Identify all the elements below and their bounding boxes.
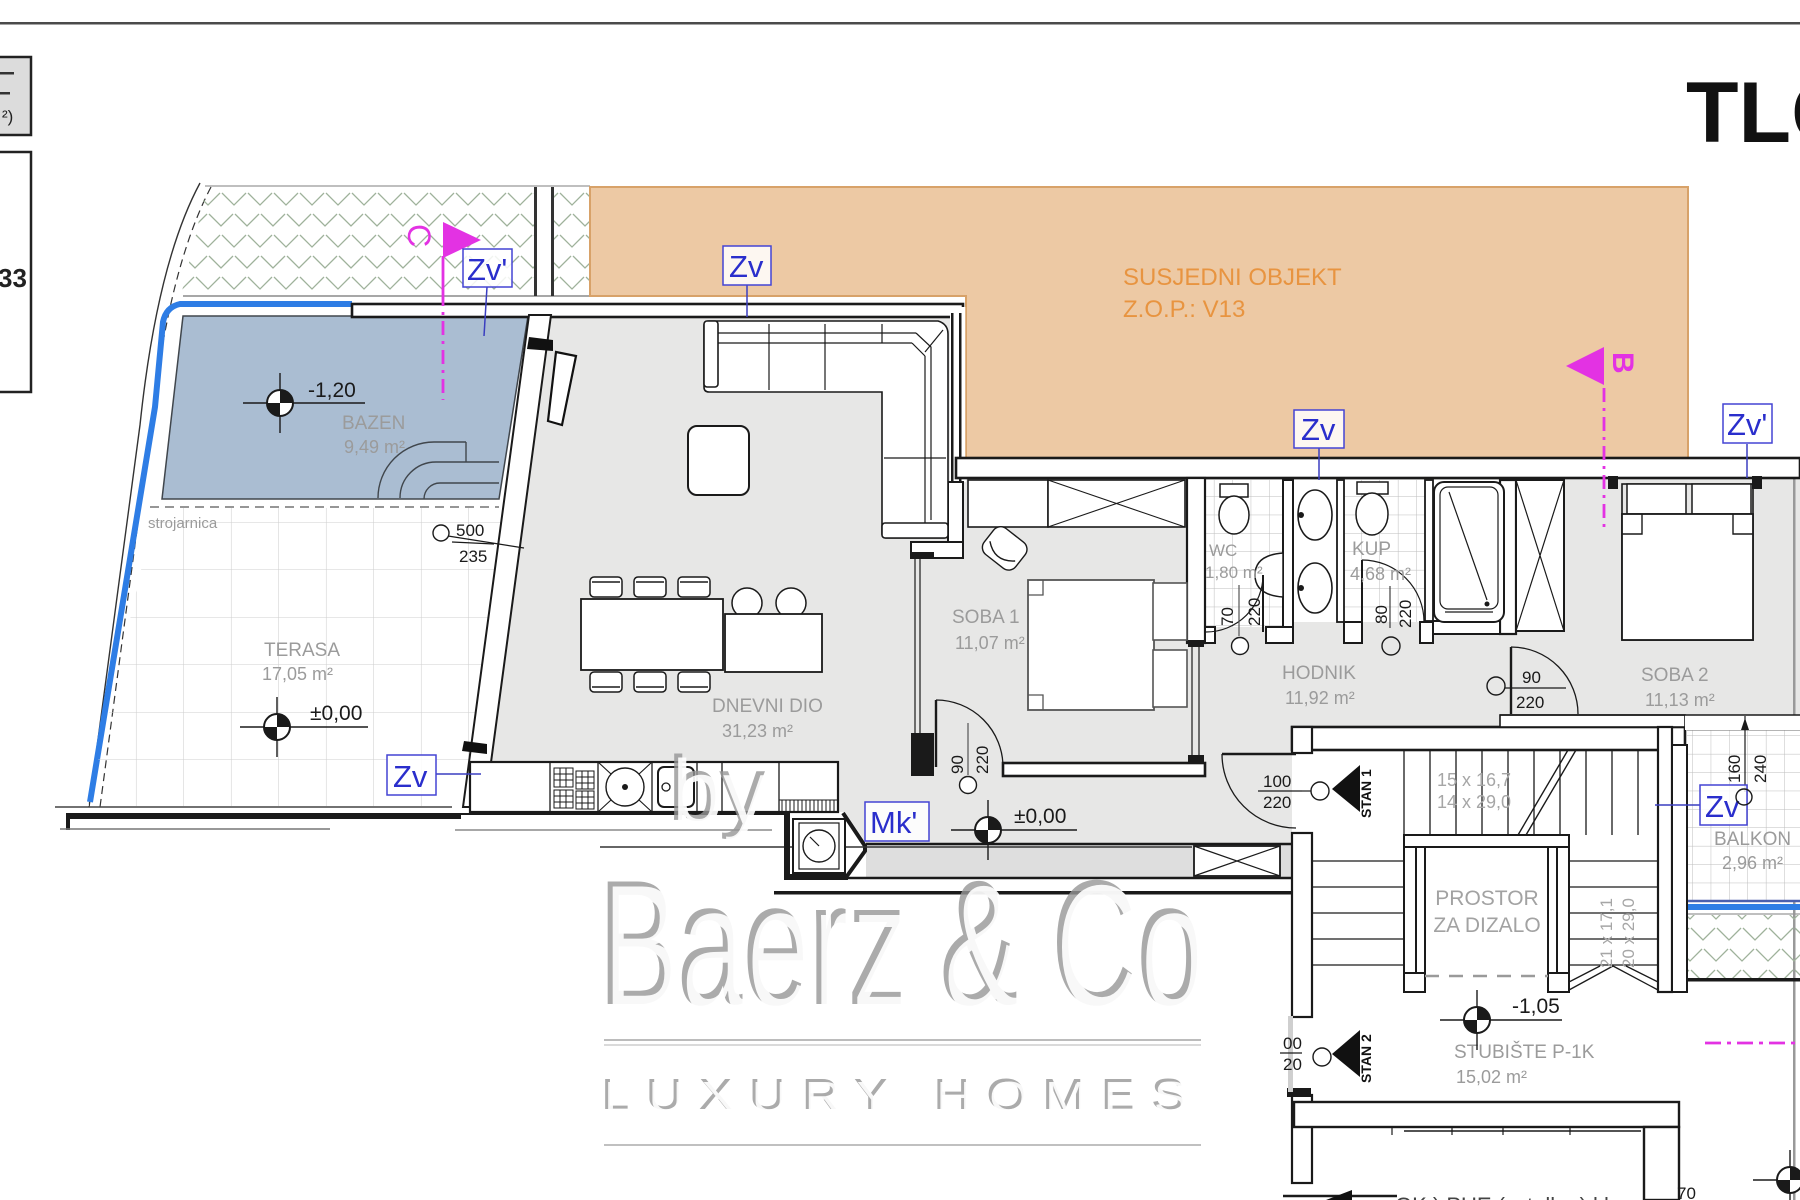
svg-text:GK ) PUE (svtnlk n) kl: GK ) PUE (svtnlk n) kl: [1395, 1193, 1609, 1200]
svg-text:ZA DIZALO: ZA DIZALO: [1433, 914, 1540, 937]
svg-text:220: 220: [973, 746, 992, 774]
svg-text:KUP: KUP: [1352, 539, 1391, 560]
svg-text:15,02 m²: 15,02 m²: [1456, 1067, 1527, 1087]
svg-text:11,92 m²: 11,92 m²: [1285, 688, 1355, 708]
svg-text:220: 220: [1396, 600, 1415, 628]
svg-text:33: 33: [0, 263, 27, 293]
svg-text:strojarnica: strojarnica: [148, 515, 218, 532]
svg-text:100: 100: [1263, 772, 1291, 791]
svg-text:SUSJEDNI OBJEKT: SUSJEDNI OBJEKT: [1123, 264, 1342, 291]
svg-text:90: 90: [1522, 668, 1541, 687]
svg-text:21 x 17,1: 21 x 17,1: [1597, 898, 1616, 968]
svg-text:Zv': Zv': [1727, 407, 1767, 442]
svg-text:TLO: TLO: [1686, 65, 1800, 161]
svg-text:14 x 29,0: 14 x 29,0: [1437, 792, 1511, 812]
svg-text:Zv: Zv: [729, 249, 764, 284]
svg-text:70: 70: [1677, 1184, 1696, 1200]
svg-text:235: 235: [459, 547, 487, 566]
svg-text:±0,00: ±0,00: [1014, 805, 1066, 828]
svg-text:220: 220: [1263, 793, 1291, 812]
svg-text:STAN 2: STAN 2: [1358, 1034, 1374, 1083]
svg-text:C: C: [401, 224, 437, 247]
svg-text:Zv: Zv: [1301, 412, 1336, 447]
svg-text:1,80 m²: 1,80 m²: [1205, 563, 1263, 582]
svg-text:500: 500: [456, 521, 484, 540]
svg-text:70: 70: [1218, 607, 1237, 626]
svg-text:-1,20: -1,20: [308, 379, 356, 402]
svg-text:HODNIK: HODNIK: [1282, 663, 1356, 684]
svg-text:220: 220: [1245, 598, 1264, 626]
svg-text:LUXURY HOMES: LUXURY HOMES: [604, 1073, 1204, 1122]
svg-text:DNEVNI DIO: DNEVNI DIO: [712, 696, 823, 717]
svg-text:±0,00: ±0,00: [310, 702, 362, 725]
svg-text:17,05 m²: 17,05 m²: [262, 664, 333, 684]
svg-text:Zv': Zv': [467, 252, 507, 287]
svg-text:Zv: Zv: [393, 759, 428, 794]
svg-text:15 x 16,7: 15 x 16,7: [1437, 770, 1511, 790]
svg-text:B: B: [1606, 352, 1639, 374]
svg-text:SOBA 1: SOBA 1: [952, 607, 1020, 628]
svg-text:²): ²): [2, 107, 13, 126]
svg-text:9,49 m²: 9,49 m²: [344, 437, 405, 457]
svg-text:Z.O.P.: V13: Z.O.P.: V13: [1123, 296, 1245, 323]
svg-text:00: 00: [1283, 1034, 1302, 1053]
svg-text:2,96 m²: 2,96 m²: [1722, 853, 1783, 873]
svg-text:11,13 m²: 11,13 m²: [1645, 690, 1715, 710]
svg-text:STUBIŠTE P-1K: STUBIŠTE P-1K: [1454, 1041, 1595, 1063]
svg-text:BALKON: BALKON: [1714, 829, 1791, 850]
svg-text:Zv: Zv: [1705, 789, 1740, 824]
svg-text:Baerz & Co: Baerz & Co: [603, 848, 1207, 1047]
svg-text:by: by: [672, 742, 769, 844]
svg-text:160: 160: [1725, 755, 1744, 783]
svg-text:PROSTOR: PROSTOR: [1435, 887, 1538, 910]
svg-text:80: 80: [1372, 605, 1391, 624]
svg-text:TERASA: TERASA: [264, 640, 340, 661]
svg-text:SOBA 2: SOBA 2: [1641, 665, 1709, 686]
svg-text:Mk': Mk': [870, 805, 917, 840]
svg-text:STAN 1: STAN 1: [1358, 769, 1374, 818]
svg-text:220: 220: [1516, 693, 1544, 712]
svg-text:90: 90: [948, 755, 967, 774]
svg-text:20: 20: [1283, 1055, 1302, 1074]
svg-text:4,68 m²: 4,68 m²: [1350, 564, 1411, 584]
svg-text:-1,05: -1,05: [1512, 995, 1560, 1018]
svg-text:WC: WC: [1209, 541, 1237, 560]
svg-text:240: 240: [1751, 755, 1770, 783]
svg-text:11,07 m²: 11,07 m²: [955, 633, 1025, 653]
svg-text:BAZEN: BAZEN: [342, 413, 405, 434]
svg-text:20 x 29,0: 20 x 29,0: [1619, 898, 1638, 968]
